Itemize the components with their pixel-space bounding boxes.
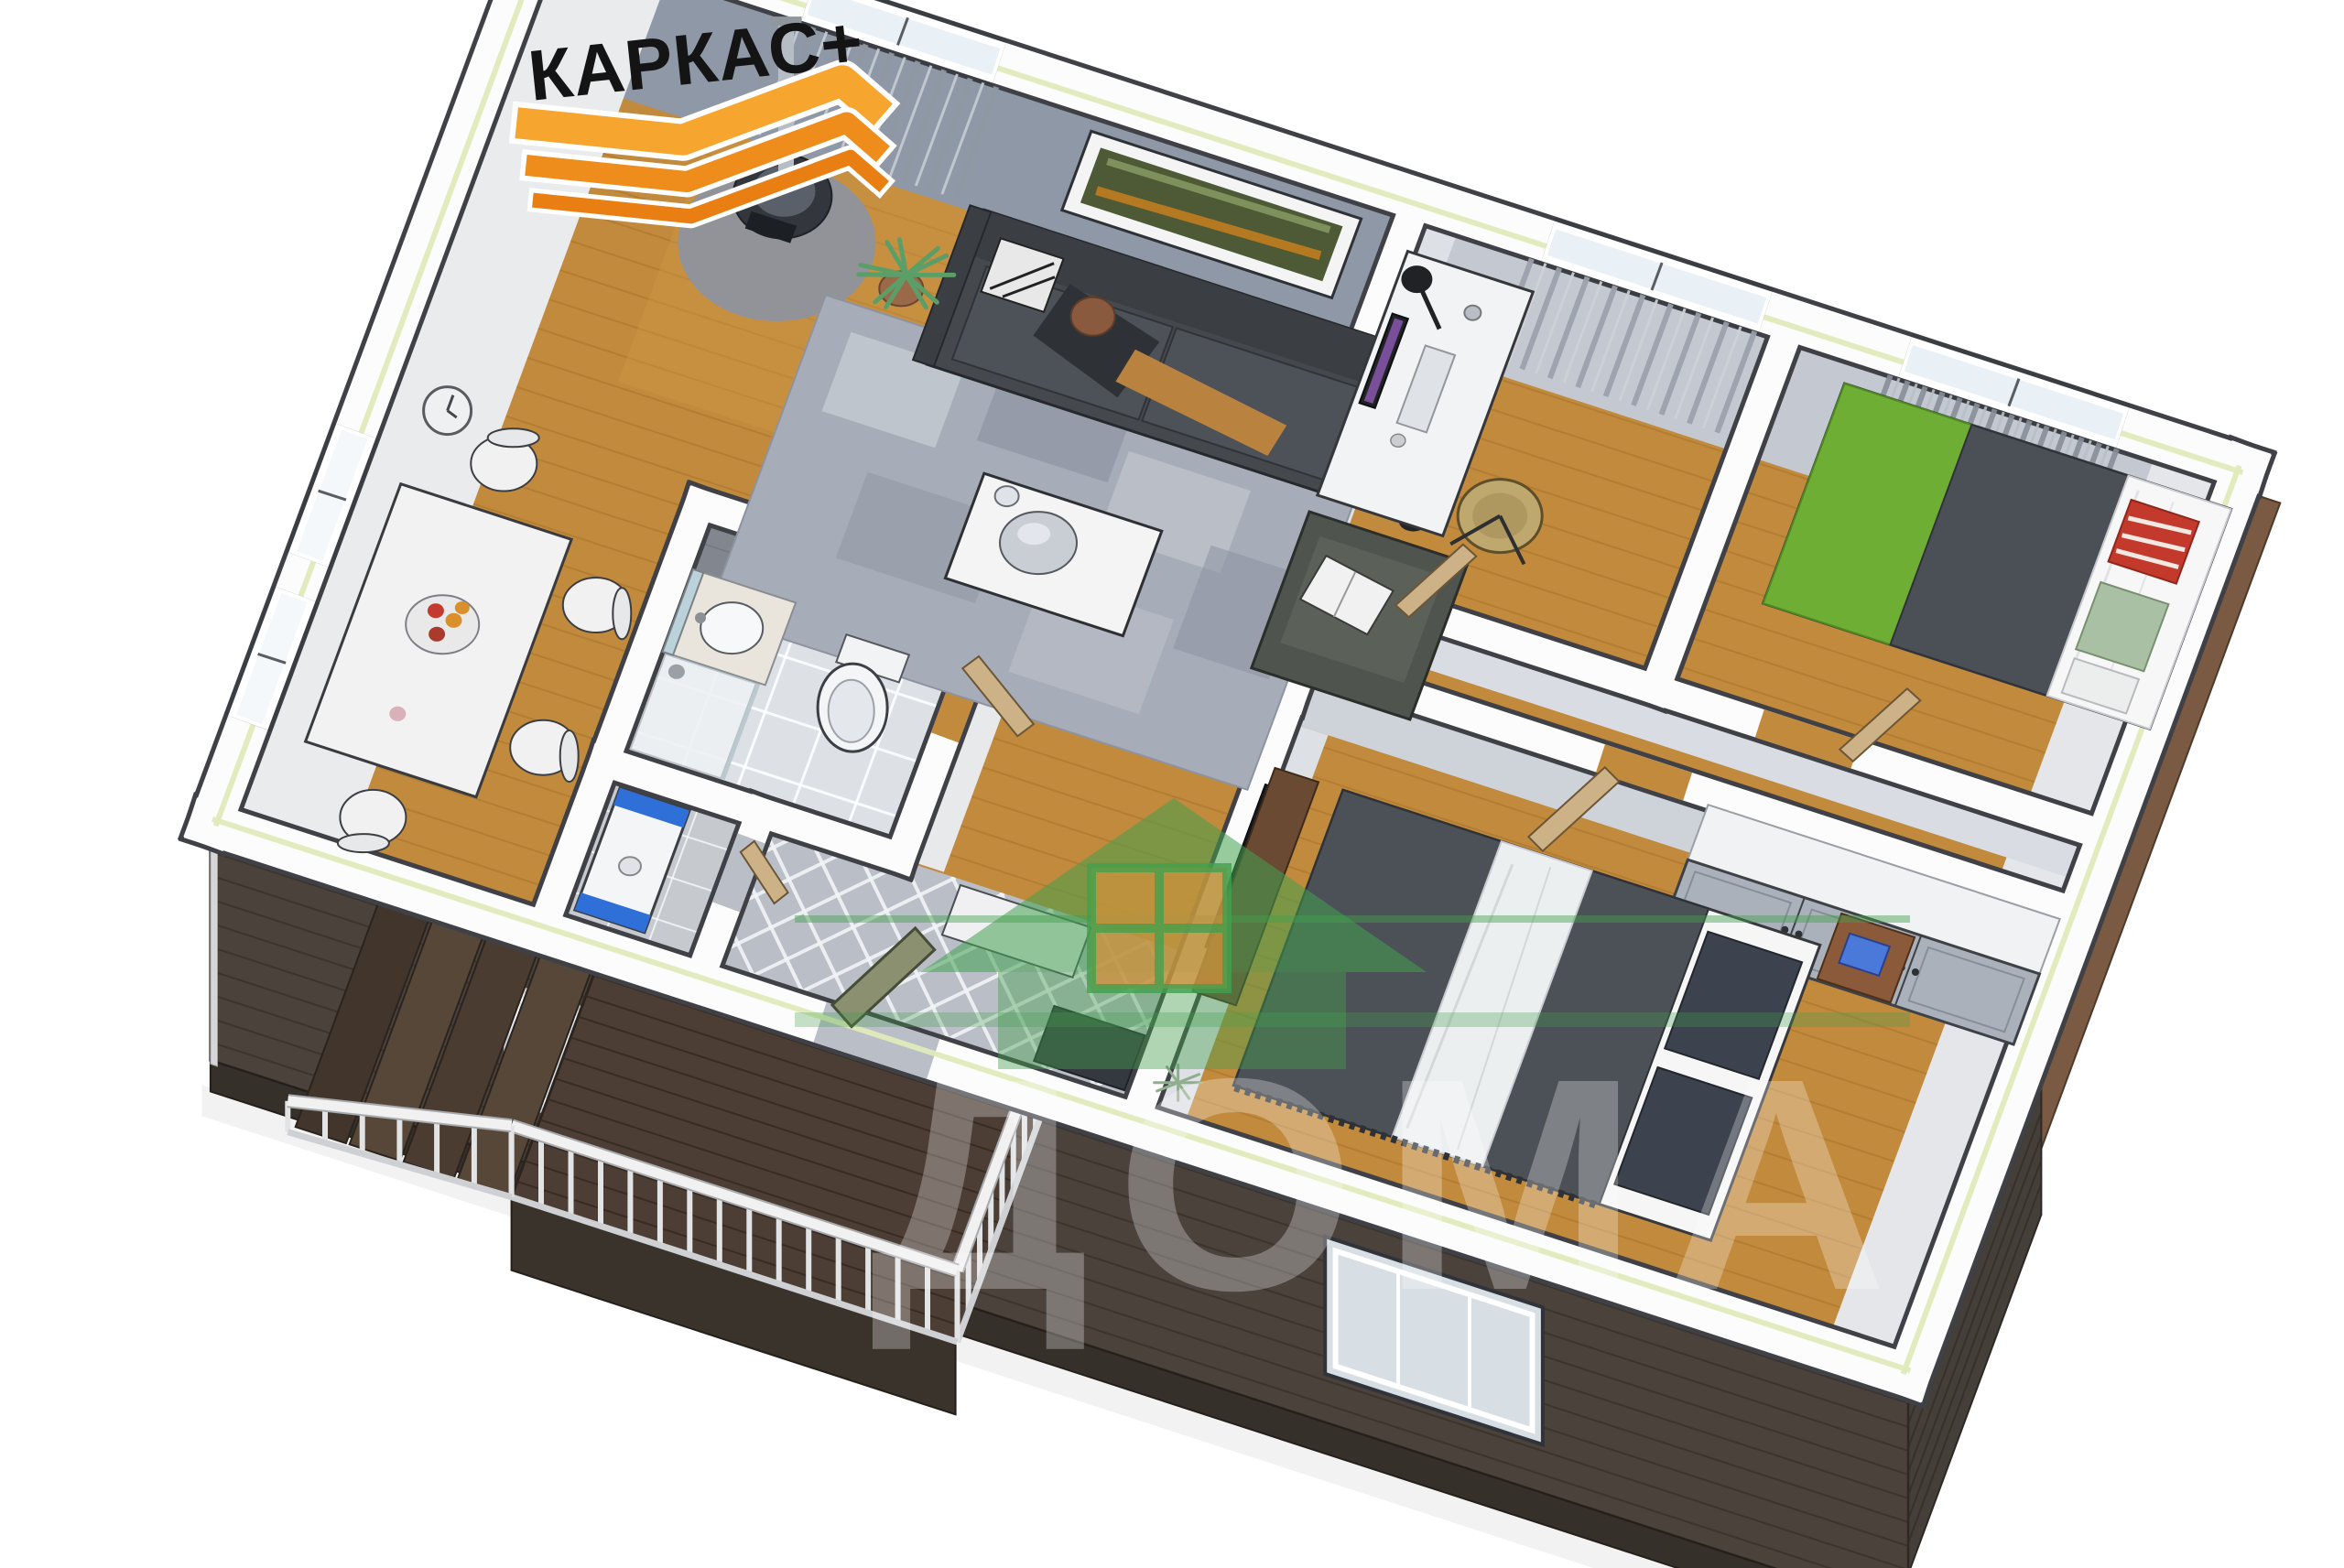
dining-chair-4-back [488, 428, 539, 447]
wardrobe-handle-4 [1912, 968, 1919, 976]
table-cup [995, 486, 1019, 506]
toilet-seat [829, 680, 874, 742]
dining-chair-3-back [338, 834, 389, 852]
fruit-2 [446, 613, 462, 628]
corner-trim-west [211, 824, 218, 1066]
dining-chair-2-back [560, 730, 579, 782]
floorplan-3d-render: ДОМА КАРКАС+ [0, 0, 2344, 1568]
water-heater-dial [619, 857, 641, 875]
fruit-1 [428, 603, 444, 618]
watermark-text: ДОМА [870, 1015, 1914, 1353]
desk-pen-cup [1464, 306, 1481, 320]
dining-glass [389, 707, 406, 721]
dining-chair-1-back [613, 588, 631, 639]
wall-clock [424, 387, 472, 435]
fruit-3 [429, 627, 445, 642]
bathroom-faucet [695, 612, 706, 623]
person-head [1071, 297, 1115, 336]
desk-mouse [1391, 434, 1405, 447]
bathroom-sink [700, 602, 763, 654]
shower-head [668, 665, 685, 679]
fruit-bowl [406, 595, 479, 654]
table-bowl-highlight [1017, 523, 1050, 545]
fruit-4 [455, 601, 470, 614]
floorplan-render-page: ДОМА КАРКАС+ [0, 0, 2344, 1568]
